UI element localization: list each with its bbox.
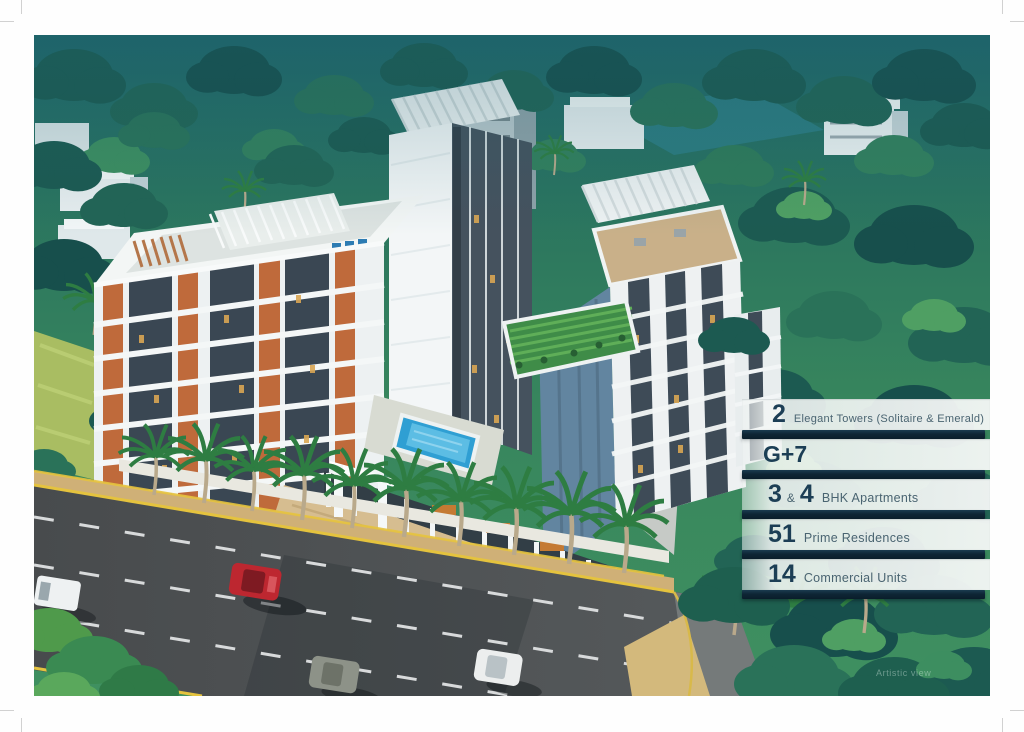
- atmosphere-haze: [34, 35, 990, 235]
- feature-label: Commercial Units: [804, 571, 907, 585]
- feature-separator: [742, 510, 985, 519]
- feature-ampersand: &: [787, 491, 795, 505]
- feature-panel: 2Elegant Towers (Solitaire & Emerald) G+…: [742, 399, 990, 599]
- feature-row-floors: G+7: [742, 439, 990, 470]
- crop-mark-top-left-v: [21, 0, 22, 14]
- crop-mark-top-right-h: [1010, 21, 1024, 22]
- crop-mark-top-left-h: [0, 21, 14, 22]
- crop-mark-bottom-right-h: [1010, 710, 1024, 711]
- feature-label: BHK Apartments: [822, 491, 919, 505]
- crop-mark-bottom-left-v: [21, 718, 22, 732]
- left-tower: [94, 193, 424, 533]
- crop-mark-top-right-v: [1002, 0, 1003, 14]
- crop-mark-bottom-left-h: [0, 710, 14, 711]
- feature-number: 3: [768, 480, 782, 508]
- feature-number: 51: [768, 520, 796, 548]
- crop-mark-bottom-right-v: [1002, 718, 1003, 732]
- feature-label: Elegant Towers (Solitaire & Emerald): [794, 413, 984, 425]
- feature-label: Prime Residences: [804, 531, 910, 545]
- feature-number: 4: [800, 480, 814, 508]
- feature-separator: [742, 590, 985, 599]
- feature-number: 2: [772, 400, 786, 428]
- feature-number: 14: [768, 560, 796, 588]
- feature-row-residences: 51Prime Residences: [742, 519, 990, 550]
- feature-row-commercial: 14Commercial Units: [742, 559, 990, 590]
- watermark: Artistic view: [876, 668, 931, 678]
- feature-separator: [742, 550, 985, 559]
- feature-separator: [742, 470, 985, 479]
- feature-separator: [742, 430, 985, 439]
- feature-row-towers: 2Elegant Towers (Solitaire & Emerald): [742, 399, 990, 430]
- feature-number: G+7: [763, 441, 807, 467]
- feature-row-bhk: 3&4BHK Apartments: [742, 479, 990, 510]
